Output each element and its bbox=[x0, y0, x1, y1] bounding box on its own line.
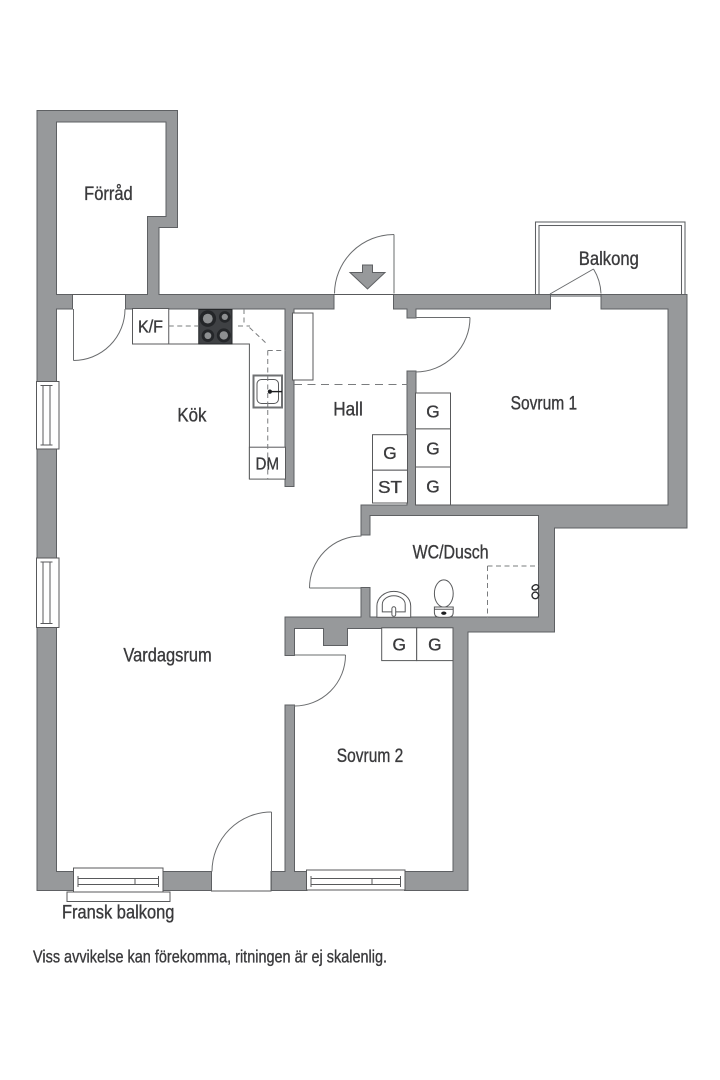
svg-text:Sovrum 2: Sovrum 2 bbox=[337, 745, 404, 767]
svg-text:K/F: K/F bbox=[138, 316, 163, 336]
svg-text:G: G bbox=[426, 476, 439, 496]
svg-text:Fransk balkong: Fransk balkong bbox=[62, 902, 175, 924]
svg-text:Förråd: Förråd bbox=[84, 183, 133, 205]
svg-text:Viss avvikelse kan förekomma,: Viss avvikelse kan förekomma, ritningen … bbox=[33, 947, 387, 967]
svg-text:G: G bbox=[428, 635, 441, 655]
svg-text:DM: DM bbox=[256, 454, 280, 474]
svg-text:ST: ST bbox=[378, 477, 402, 497]
svg-text:Balkong: Balkong bbox=[579, 248, 639, 270]
svg-text:G: G bbox=[426, 401, 439, 421]
svg-text:G: G bbox=[392, 635, 405, 655]
svg-text:Vardagsrum: Vardagsrum bbox=[123, 645, 211, 667]
svg-text:Kök: Kök bbox=[177, 405, 206, 427]
svg-text:WC/Dusch: WC/Dusch bbox=[413, 542, 489, 564]
svg-text:Hall: Hall bbox=[333, 398, 363, 420]
svg-text:G: G bbox=[426, 438, 439, 458]
svg-text:Sovrum 1: Sovrum 1 bbox=[511, 392, 578, 414]
svg-text:G: G bbox=[383, 443, 396, 463]
